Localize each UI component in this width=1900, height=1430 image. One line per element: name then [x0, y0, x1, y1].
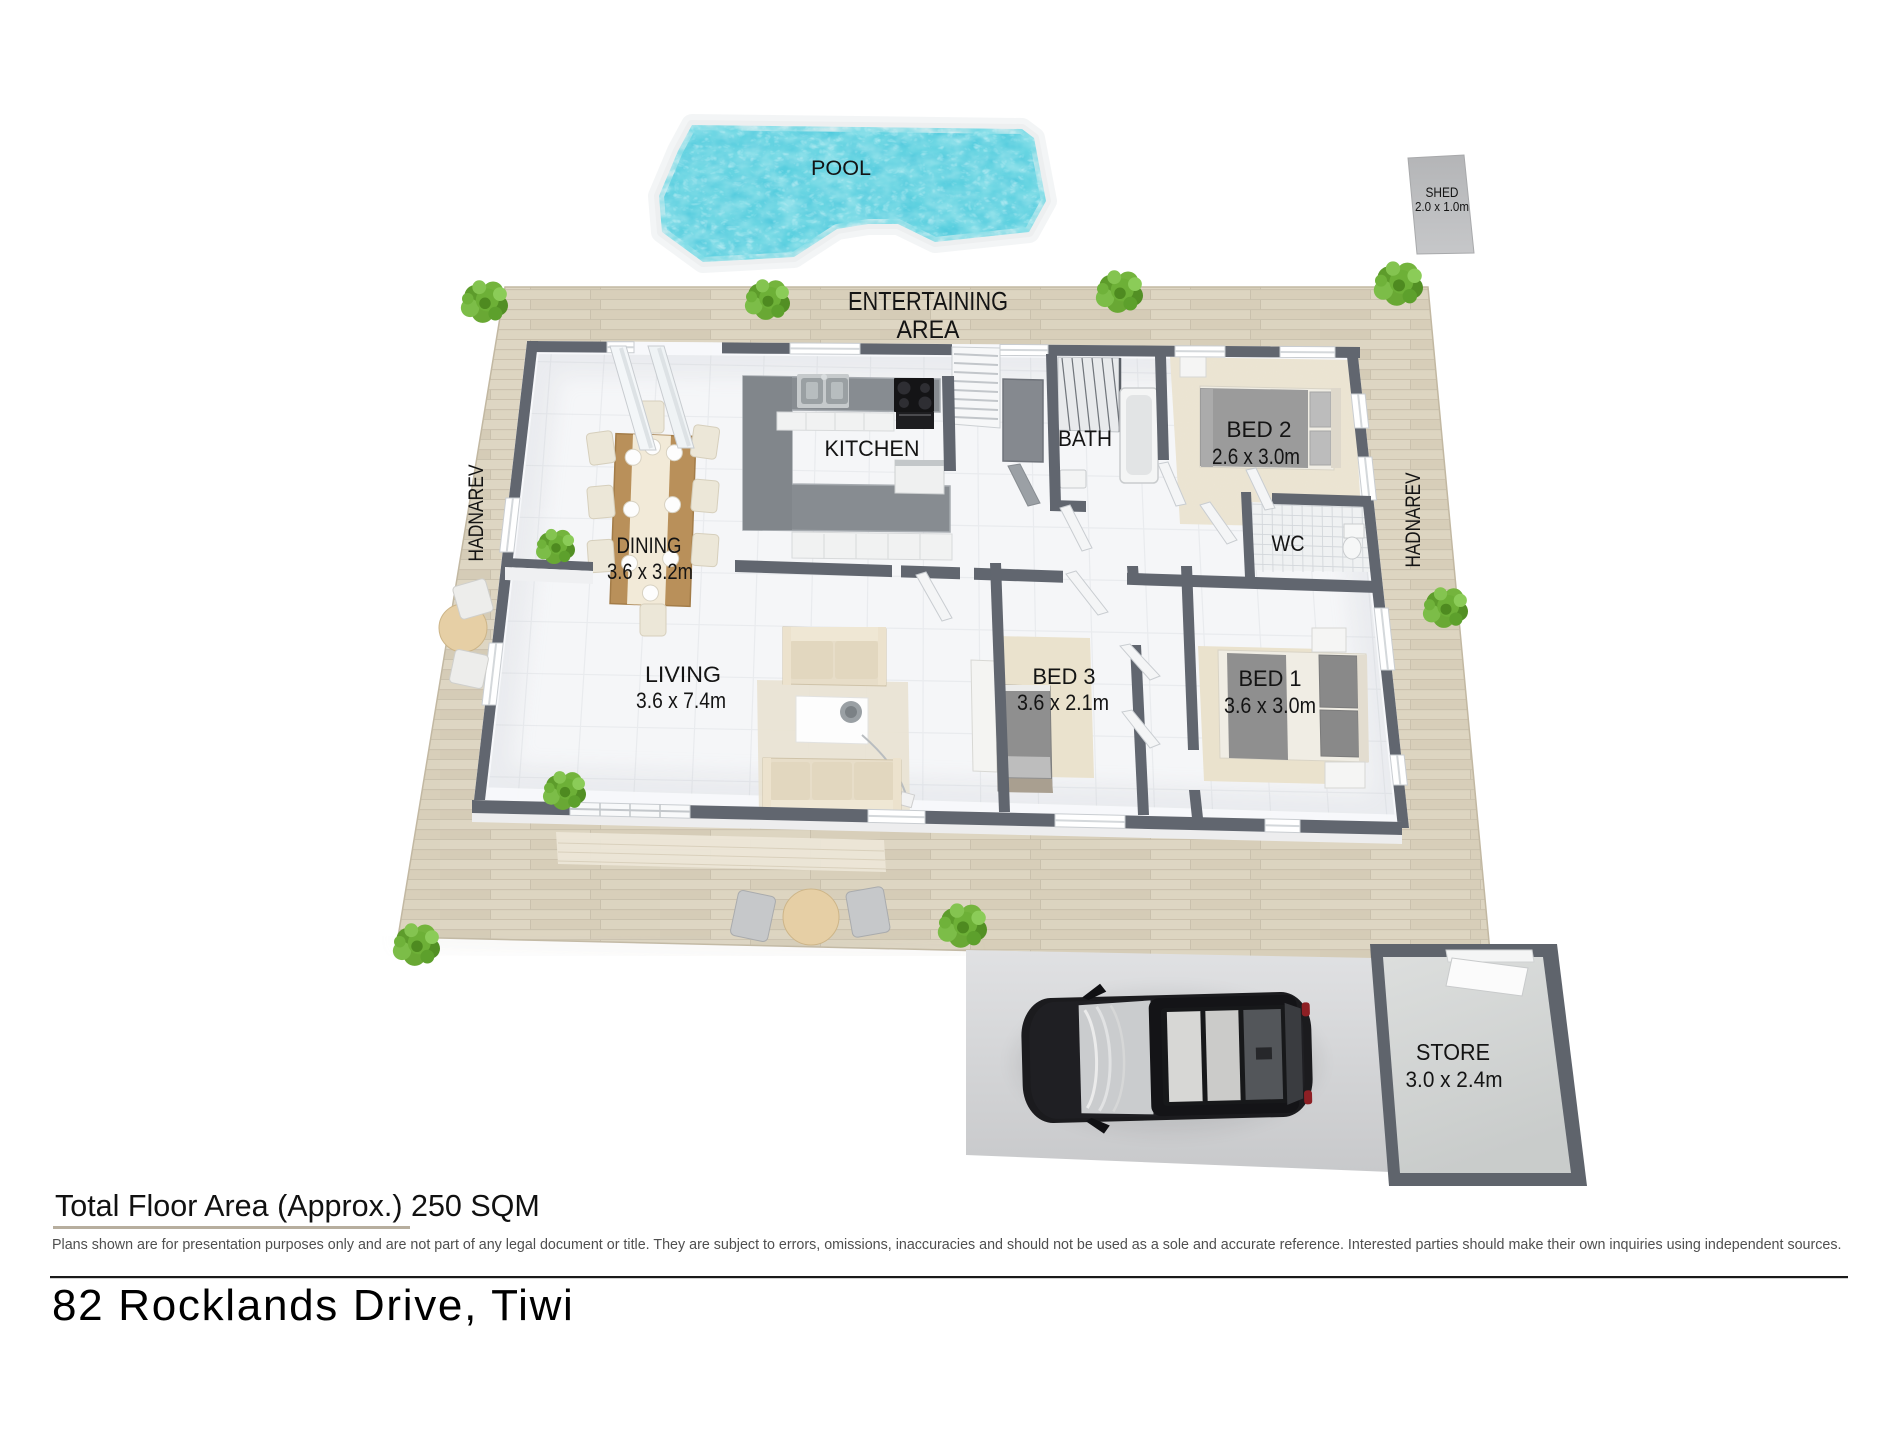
svg-text:WC: WC [1272, 531, 1305, 556]
svg-text:BED 3: BED 3 [1033, 664, 1096, 689]
svg-text:DINING: DINING [617, 533, 682, 558]
svg-text:STORE: STORE [1416, 1039, 1490, 1065]
svg-text:POOL: POOL [811, 156, 871, 180]
svg-text:2.0 x 1.0m: 2.0 x 1.0m [1415, 199, 1469, 214]
svg-text:BED 1: BED 1 [1239, 666, 1302, 691]
svg-text:KITCHEN: KITCHEN [825, 436, 920, 461]
svg-text:82 Rocklands Drive, Tiwi: 82 Rocklands Drive, Tiwi [52, 1281, 575, 1330]
svg-text:3.6 x 2.1m: 3.6 x 2.1m [1017, 690, 1109, 715]
svg-text:Plans shown are for presentati: Plans shown are for presentation purpose… [52, 1237, 1841, 1253]
svg-text:SHED: SHED [1426, 184, 1459, 200]
svg-text:LIVING: LIVING [645, 662, 721, 687]
svg-text:3.6 x 7.4m: 3.6 x 7.4m [636, 688, 726, 713]
svg-text:3.0 x 2.4m: 3.0 x 2.4m [1406, 1067, 1503, 1092]
svg-text:3.6 x 3.2m: 3.6 x 3.2m [607, 559, 693, 584]
svg-text:3.6 x 3.0m: 3.6 x 3.0m [1224, 693, 1316, 718]
svg-text:HADNAREV: HADNAREV [1402, 473, 1425, 568]
svg-text:Total Floor Area (Approx.) 250: Total Floor Area (Approx.) 250 SQM [55, 1189, 540, 1223]
svg-text:HADNAREV: HADNAREV [465, 465, 488, 562]
svg-text:2.6 x 3.0m: 2.6 x 3.0m [1212, 444, 1300, 469]
svg-text:AREA: AREA [897, 316, 960, 344]
svg-text:BED 2: BED 2 [1227, 417, 1292, 442]
svg-text:BATH: BATH [1058, 426, 1112, 451]
svg-text:ENTERTAINING: ENTERTAINING [848, 286, 1008, 316]
